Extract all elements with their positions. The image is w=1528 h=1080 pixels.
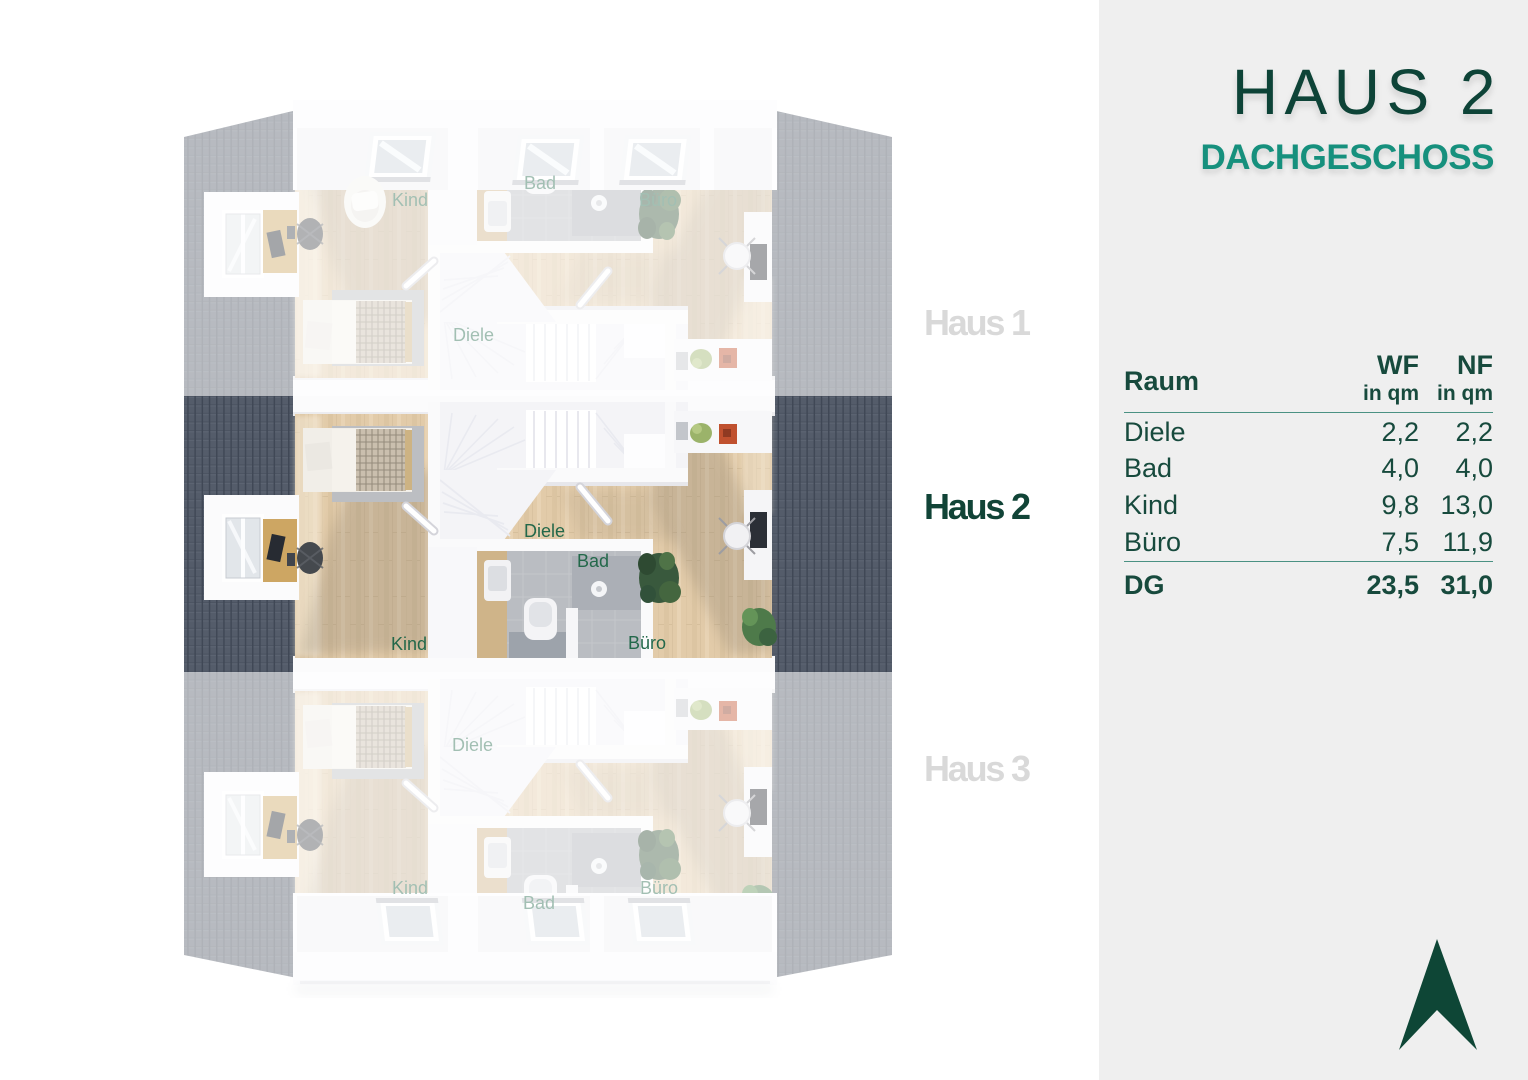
- svg-text:Diele: Diele: [524, 521, 565, 541]
- svg-text:Büro: Büro: [628, 633, 666, 653]
- svg-text:Kind: Kind: [391, 634, 427, 654]
- svg-text:Bad: Bad: [577, 551, 609, 571]
